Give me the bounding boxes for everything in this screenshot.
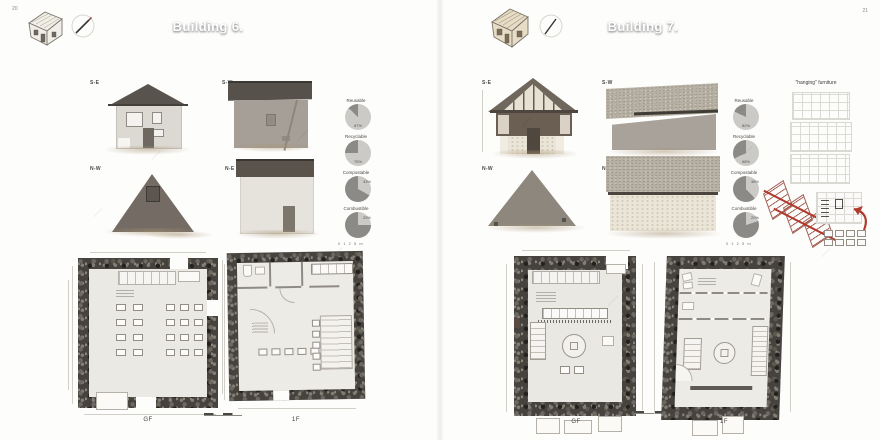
- interior-wall: [301, 262, 303, 286]
- eave-bracket: [562, 218, 566, 222]
- exterior-bench: [598, 416, 622, 432]
- wall: [240, 177, 314, 234]
- page-number: 20: [12, 6, 18, 12]
- pie-chart-compostable: 33%: [345, 176, 371, 202]
- thatch-roof: [606, 156, 720, 192]
- room-annotation-text: [536, 292, 556, 302]
- elevation-se-drawing: [88, 78, 198, 158]
- plan-1f: [661, 256, 785, 420]
- shelf-unit: [118, 271, 176, 285]
- elevation-ne-drawing: [604, 152, 726, 242]
- dimension-line: [642, 264, 643, 410]
- door: [283, 206, 295, 232]
- fixture: [602, 336, 614, 346]
- pie-chart-reusable: 82%: [733, 104, 759, 130]
- plan-1f: [227, 251, 366, 401]
- room-annotation-text: [698, 276, 716, 285]
- dimension-line: [224, 264, 225, 400]
- hatch-strip: [538, 320, 612, 323]
- ground-shadow: [230, 144, 314, 152]
- house-axonometric-icon: [22, 8, 68, 50]
- header-photo-banner: Building 6.: [145, 7, 271, 45]
- plan-label-1f: 1F: [712, 419, 736, 425]
- tall-shelf: [683, 338, 702, 370]
- ridge: [236, 159, 314, 161]
- roof-gable: [112, 174, 194, 232]
- window: [152, 112, 162, 124]
- elevation-nw-drawing: [484, 166, 594, 236]
- pie-chart-combustible: 25%: [345, 212, 371, 238]
- interior-wall: [680, 292, 768, 294]
- wall-opening: [170, 258, 188, 269]
- entry-fixture: [606, 264, 626, 274]
- annotation-title: "hanging" furniture: [776, 80, 856, 86]
- pie-value: 33%: [363, 179, 371, 184]
- ground-shadow: [484, 224, 588, 233]
- page-title: Building 7.: [608, 19, 679, 34]
- dimension-line: [790, 262, 791, 412]
- plan-scale-bar: [204, 413, 242, 416]
- sink-fixture: [255, 267, 265, 275]
- dimension-line: [90, 252, 206, 253]
- header-photo-banner: Building 7.: [580, 5, 706, 47]
- roof: [228, 81, 312, 100]
- ground-shadow: [490, 150, 580, 159]
- plan-label-gf: GF: [564, 419, 588, 425]
- elevation-nw-drawing: [88, 168, 208, 240]
- plan-label-1f: 1F: [284, 417, 308, 423]
- pencil-icon: [70, 13, 96, 39]
- table-base: [570, 342, 578, 350]
- bar-counter-block: [320, 315, 353, 370]
- elevation-ne-drawing: [232, 156, 322, 242]
- elevation-sw-drawing: [226, 78, 318, 158]
- page-building-7: 21 Building 7. S-E: [440, 0, 880, 440]
- plan-gf: [514, 256, 636, 416]
- page-number: 21: [862, 8, 868, 14]
- wall-opening: [207, 300, 218, 316]
- timber-panel: [498, 115, 509, 134]
- window: [153, 129, 164, 137]
- stair-treads: [751, 326, 769, 376]
- pie-value: 25%: [363, 215, 371, 220]
- furniture-elevation-grid: [790, 122, 852, 152]
- window: [266, 114, 276, 126]
- roof: [236, 160, 314, 177]
- wall: [610, 195, 716, 231]
- counter-seats-column: [312, 320, 321, 371]
- dimension-line: [522, 250, 630, 251]
- ridge: [228, 81, 312, 83]
- elevation-se-drawing: [488, 76, 588, 162]
- pie-chart-compostable: 38%: [733, 176, 759, 202]
- dimension-line: [238, 408, 356, 409]
- dimension-line: [68, 280, 69, 390]
- page-gutter: [436, 0, 444, 440]
- page-building-6: 20 Building 6. S-E: [0, 0, 440, 440]
- pie-chart-reusable: 87%: [345, 104, 371, 130]
- house-axonometric-icon: [484, 4, 534, 52]
- pie-label-combustible: Combustible: [334, 206, 378, 211]
- dimension-line: [84, 414, 216, 415]
- fixture: [682, 302, 694, 310]
- pie-value: 38%: [751, 179, 759, 184]
- pie-label-recyclable: Recyclable: [334, 134, 378, 139]
- roof: [110, 84, 186, 105]
- ground-shadow: [234, 230, 322, 239]
- ground-slope-shadow: [144, 232, 214, 239]
- room-annotation-text: [116, 288, 134, 297]
- table-cluster-left: [116, 304, 143, 356]
- tall-shelf: [530, 322, 546, 360]
- ground-shadow: [604, 230, 724, 239]
- wall-opening: [273, 390, 289, 400]
- dimension-line: [222, 260, 223, 394]
- dimension-line: [654, 262, 655, 414]
- dimension-line: [482, 90, 483, 152]
- furniture-elevation-grid: [790, 154, 850, 184]
- furniture-elevation-grid: [792, 92, 850, 120]
- window: [146, 186, 160, 202]
- wall-marker: [514, 318, 520, 328]
- long-counter: [542, 308, 608, 319]
- elevation-scale-text: 0 1 2 5 m: [726, 241, 752, 246]
- interior-wall: [269, 262, 271, 286]
- kitchen-counter: [311, 263, 353, 275]
- interior-wall: [679, 318, 767, 320]
- pie-chart-combustible: 20%: [733, 212, 759, 238]
- room-annotation-text: [252, 322, 268, 332]
- round-table: [562, 334, 586, 358]
- pie-label-reusable: Reusable: [334, 98, 378, 103]
- table-cluster-right: [166, 304, 203, 356]
- shelf-plan-sketch: [824, 230, 866, 246]
- plan-label-gf: GF: [136, 417, 160, 423]
- toilet-fixture: [243, 265, 252, 277]
- pie-label-reusable: Reusable: [722, 98, 766, 103]
- red-arrow-icon: [838, 198, 868, 234]
- shelf-unit: [532, 271, 600, 284]
- plan-gf: [78, 258, 218, 408]
- bench-bar: [690, 386, 752, 390]
- pie-value: 87%: [354, 123, 362, 128]
- fixture: [682, 281, 693, 289]
- wall-opening: [136, 397, 156, 408]
- pie-label-recyclable: Recyclable: [722, 134, 766, 139]
- pencil-icon: [538, 13, 564, 39]
- pie-value: 68%: [742, 159, 750, 164]
- table-base: [720, 349, 728, 357]
- timber-panel: [560, 115, 570, 134]
- pie-value: 75%: [354, 159, 362, 164]
- elevation-scale-text: 0 1 2 5 m: [338, 241, 364, 246]
- pie-label-compostable: Compostable: [334, 170, 378, 175]
- pie-label-compostable: Compostable: [722, 170, 766, 175]
- dimension-line: [72, 266, 73, 404]
- wall: [612, 114, 716, 150]
- fixture: [178, 271, 200, 282]
- table-pair: [560, 366, 584, 374]
- pie-value: 82%: [742, 123, 750, 128]
- door: [143, 128, 154, 148]
- pie-value: 20%: [751, 215, 759, 220]
- sketch-hatch: [821, 197, 829, 217]
- ground-shadow: [102, 146, 192, 155]
- pie-chart-recyclable: 75%: [345, 140, 371, 166]
- exterior-bench: [536, 418, 560, 434]
- book-spread: 20 Building 6. S-E: [0, 0, 880, 440]
- window: [126, 112, 143, 127]
- pie-label-combustible: Combustible: [722, 206, 766, 211]
- page-title: Building 6.: [173, 19, 244, 34]
- dimension-line: [506, 264, 507, 412]
- annex-outline: [96, 392, 128, 410]
- elevation-sw-drawing: [604, 78, 724, 160]
